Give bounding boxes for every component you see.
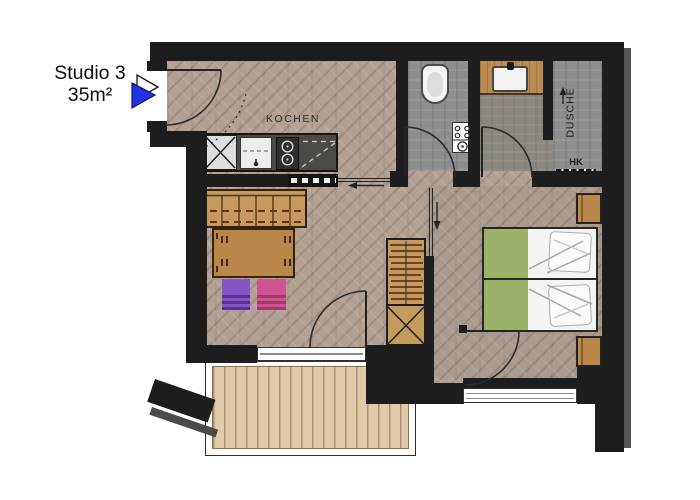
wall-right-stub <box>595 404 622 452</box>
wall-right-shadow <box>624 48 631 448</box>
wall-left-jog <box>150 131 207 147</box>
shower-label: DUSCHE <box>565 83 578 143</box>
dining-table <box>212 228 295 278</box>
wall-vestibule-shower <box>543 61 553 140</box>
pillow-bed-2 <box>548 284 592 327</box>
wall-bedroom-door-chunk <box>434 383 464 404</box>
sofa <box>203 189 307 228</box>
unit-title: Studio 3 <box>28 62 152 84</box>
wall-shower-south <box>532 171 602 187</box>
wall-south-west <box>186 345 257 363</box>
exterior-area <box>140 147 186 480</box>
nightstand-top <box>576 193 602 224</box>
radiator-label: HK <box>563 157 589 168</box>
bedroom-window-line-1 <box>466 393 574 394</box>
sliding-door-panel <box>426 256 434 390</box>
bedroom-window <box>463 388 577 403</box>
faucet-icon <box>507 62 514 70</box>
unit-area: 35m² <box>28 84 152 106</box>
wall-wc-vestibule <box>468 61 480 173</box>
cooktop <box>276 137 299 170</box>
exterior-area <box>416 404 596 480</box>
wall-kitchen-back <box>200 174 288 187</box>
stool-purple-stripes <box>222 294 250 310</box>
wall-wc-east-post <box>453 171 480 187</box>
kitchen-sink <box>240 137 272 169</box>
wall-above-bedroom-window <box>463 378 577 388</box>
sliding-door-pocket-dashes <box>291 178 336 183</box>
wall-junction <box>366 345 434 404</box>
stool-pink-stripes <box>257 294 286 310</box>
nightstand-bottom <box>576 336 602 367</box>
wall-wc-west <box>396 61 408 173</box>
wardrobe <box>386 238 426 346</box>
unit-label: Studio 3 35m² <box>28 62 152 106</box>
bedroom-window-line-2 <box>466 398 574 399</box>
kitchen-label: KOCHEN <box>255 113 331 125</box>
wall-post-slide <box>390 171 408 187</box>
wall-right <box>602 42 624 452</box>
floor-plan: Studio 3 35m² KOCHEN DUSCHE HK <box>0 0 700 500</box>
toilet-bowl <box>427 72 443 97</box>
shower-floor <box>553 61 602 171</box>
pillow-bed-1 <box>548 231 592 273</box>
wall-bedroom-south-east <box>577 367 602 404</box>
service-shaft <box>204 135 237 170</box>
wardrobe-divider <box>387 304 425 306</box>
wall-top <box>150 42 622 61</box>
balcony-door-band-line <box>260 353 363 355</box>
bedroom-door-jamb <box>459 325 467 333</box>
